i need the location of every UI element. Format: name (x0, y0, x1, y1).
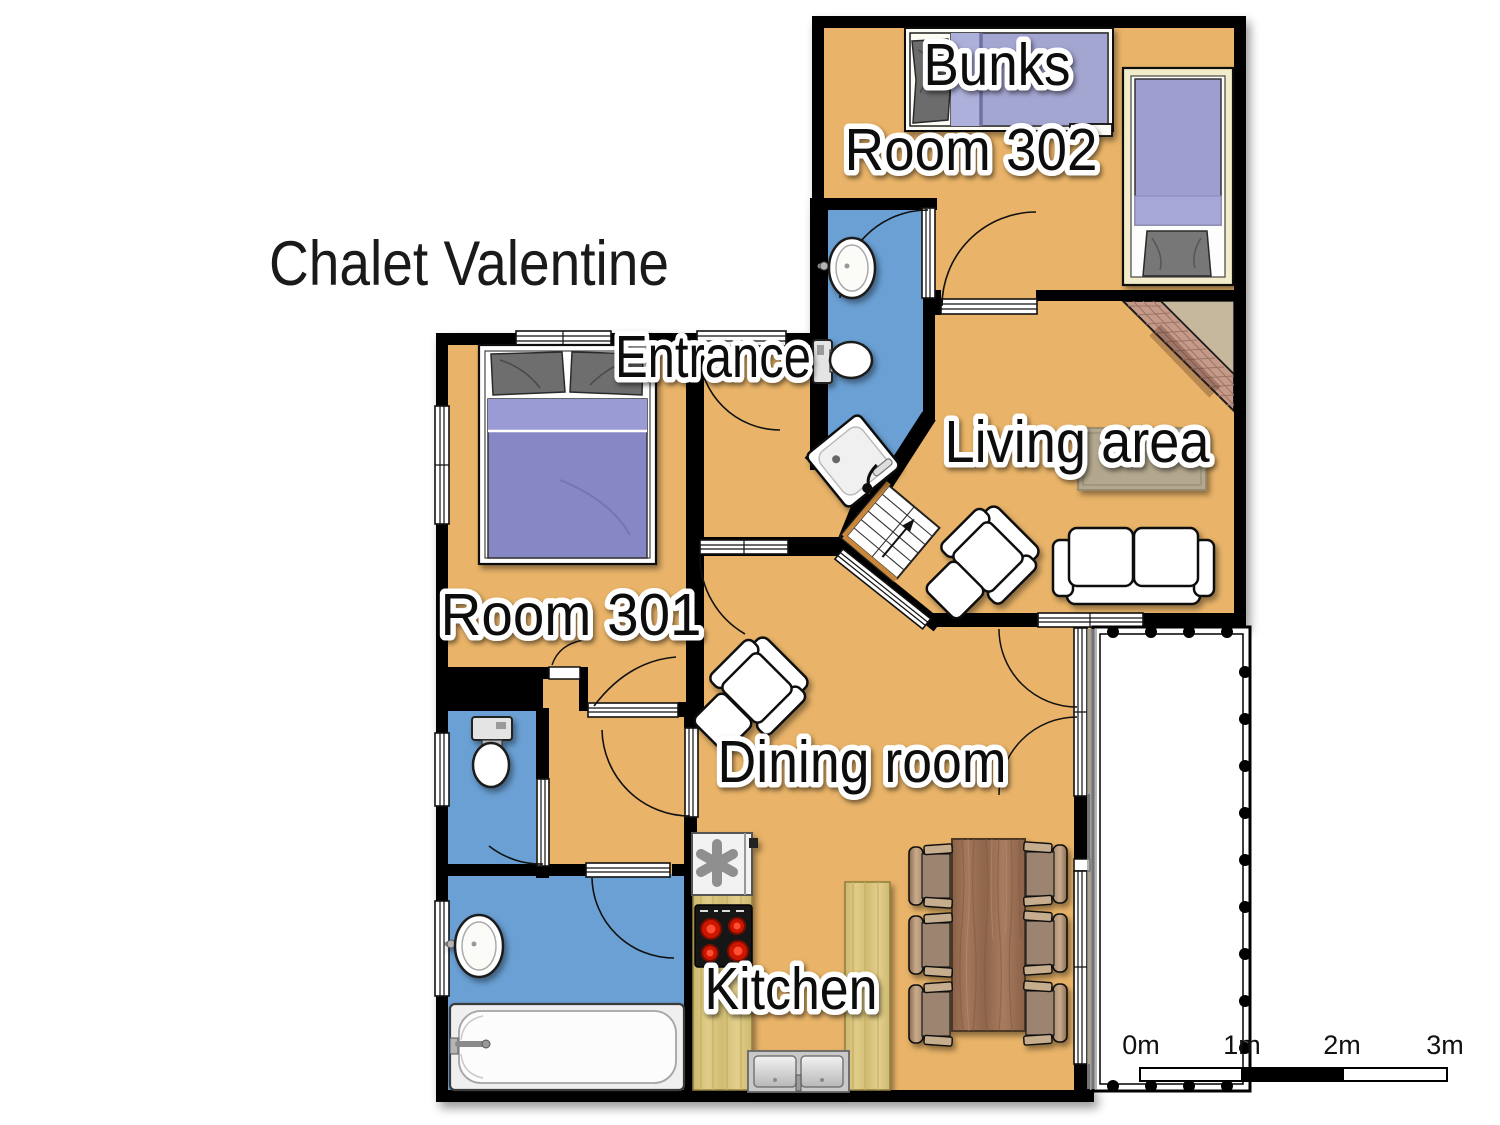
svg-text:Kitchen: Kitchen (705, 956, 878, 1022)
svg-text:Room 302: Room 302 (845, 117, 1098, 183)
svg-text:0m: 0m (1122, 1030, 1160, 1060)
svg-text:Room 301: Room 301 (441, 582, 702, 648)
svg-text:Living area: Living area (945, 409, 1210, 475)
svg-text:Chalet Valentine: Chalet Valentine (269, 229, 669, 299)
svg-text:Dining room: Dining room (718, 729, 1007, 795)
svg-text:Entrance: Entrance (615, 324, 811, 390)
svg-text:1m: 1m (1223, 1030, 1261, 1060)
svg-text:3m: 3m (1426, 1030, 1464, 1060)
svg-text:Bunks: Bunks (924, 32, 1071, 98)
svg-text:2m: 2m (1323, 1030, 1361, 1060)
